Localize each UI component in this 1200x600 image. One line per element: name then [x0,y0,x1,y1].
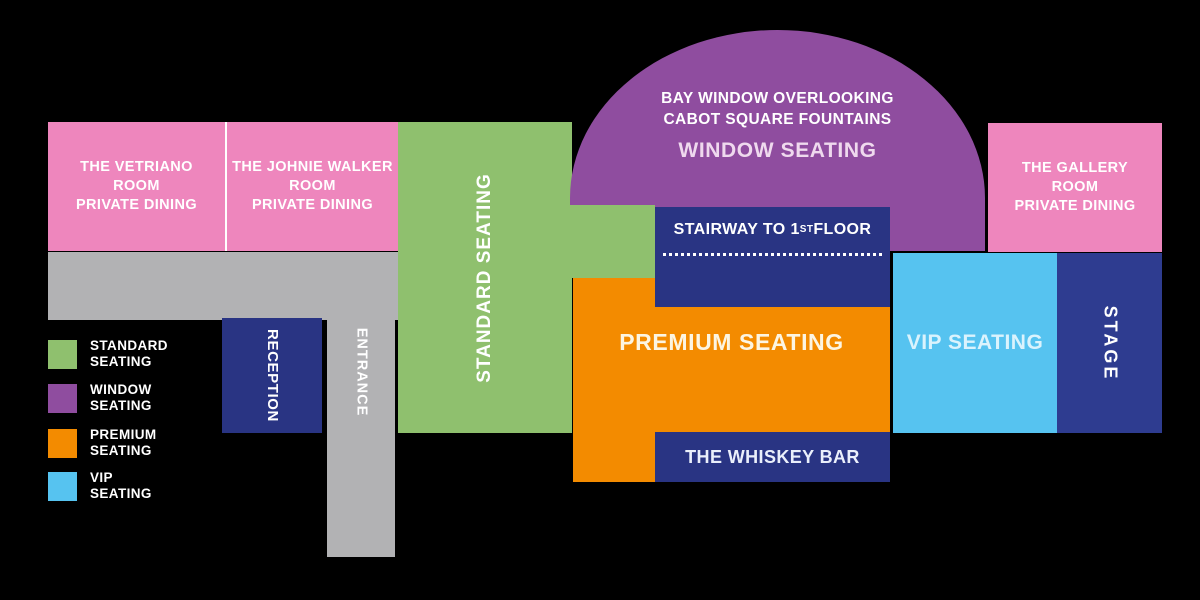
legend-label-window-line1: WINDOW [90,382,152,398]
legend-label-window-line2: SEATING [90,398,152,414]
entrance-label: ENTRANCE [353,328,369,417]
premium-seating-extension [573,432,655,482]
standard-seating-area: STANDARD SEATING [398,122,572,433]
floor-plan: BAY WINDOW OVERLOOKING CABOT SQUARE FOUN… [0,0,1200,600]
room-johnie-walker-line3: PRIVATE DINING [232,196,393,215]
room-gallery-line2: ROOM [1014,178,1135,197]
legend-label-premium-line1: PREMIUM [90,427,157,443]
room-vetriano-line3: PRIVATE DINING [76,196,197,215]
whiskey-bar-label: THE WHISKEY BAR [685,447,860,468]
stairway-block: STAIRWAY TO 1ST FLOOR [655,207,890,307]
legend-label-window: WINDOW SEATING [90,382,152,414]
legend-label-premium: PREMIUM SEATING [90,427,157,459]
legend-swatch-vip [48,472,77,501]
whiskey-bar-block: THE WHISKEY BAR [655,432,890,482]
legend-item-vip: VIP SEATING [48,470,152,502]
legend-label-premium-line2: SEATING [90,443,157,459]
legend-label-standard-line1: STANDARD [90,338,168,354]
room-johnie-walker-line1: THE JOHNIE WALKER [232,158,393,177]
legend-label-vip: VIP SEATING [90,470,152,502]
room-johnie-walker-line2: ROOM [232,177,393,196]
bay-window-caption-line1: BAY WINDOW OVERLOOKING [661,88,894,109]
premium-seating-label: PREMIUM SEATING [619,329,844,356]
standard-seating-notch [570,205,655,278]
room-gallery-line1: THE GALLERY [1014,159,1135,178]
entrance-corridor: ENTRANCE [327,252,395,557]
room-gallery: THE GALLERY ROOM PRIVATE DINING [988,123,1162,252]
legend-item-window: WINDOW SEATING [48,382,152,414]
reception-label: RECEPTION [263,329,280,422]
stairway-dotted-line [663,253,882,256]
legend-swatch-standard [48,340,77,369]
legend-label-vip-line1: VIP [90,470,152,486]
vip-seating-label: VIP SEATING [907,331,1044,355]
legend-swatch-window [48,384,77,413]
legend-label-vip-line2: SEATING [90,486,152,502]
legend-item-standard: STANDARD SEATING [48,338,168,370]
room-johnie-walker: THE JOHNIE WALKER ROOM PRIVATE DINING [227,122,398,251]
stage-block: STAGE [1057,253,1162,433]
room-johnie-walker-label: THE JOHNIE WALKER ROOM PRIVATE DINING [232,158,393,215]
legend-label-standard: STANDARD SEATING [90,338,168,370]
room-vetriano: THE VETRIANO ROOM PRIVATE DINING [48,122,225,251]
standard-seating-label: STANDARD SEATING [474,173,496,383]
stairway-label-suffix: FLOOR [813,221,871,239]
vip-seating-area: VIP SEATING [893,253,1057,433]
window-seating-label: WINDOW SEATING [678,139,876,163]
legend-swatch-premium [48,429,77,458]
bay-window-caption-line2: CABOT SQUARE FOUNTAINS [663,109,891,130]
room-vetriano-line1: THE VETRIANO [76,158,197,177]
reception-block: RECEPTION [222,318,322,433]
room-gallery-label: THE GALLERY ROOM PRIVATE DINING [1014,159,1135,216]
legend-label-standard-line2: SEATING [90,354,168,370]
stage-label: STAGE [1099,305,1120,381]
entrance-label-wrap: ENTRANCE [327,252,395,492]
stairway-label-prefix: STAIRWAY TO 1 [674,221,800,239]
legend-item-premium: PREMIUM SEATING [48,427,157,459]
room-gallery-line3: PRIVATE DINING [1014,197,1135,216]
room-vetriano-label: THE VETRIANO ROOM PRIVATE DINING [76,158,197,215]
stairway-label: STAIRWAY TO 1ST FLOOR [655,207,890,253]
room-vetriano-line2: ROOM [76,177,197,196]
